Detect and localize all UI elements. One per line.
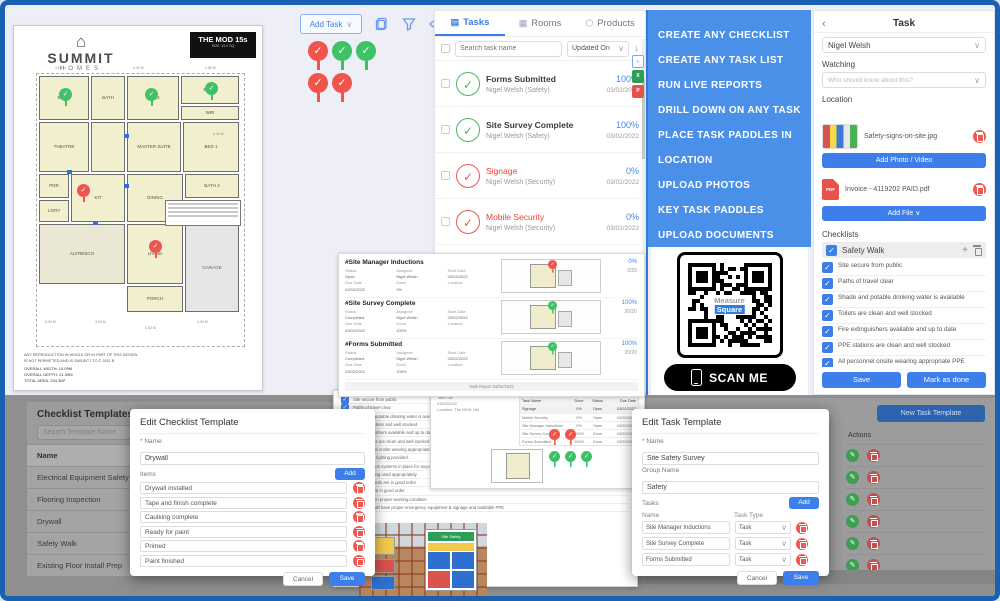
checklist-item[interactable]: Toilets are clean and well stocked	[822, 308, 986, 324]
phone-icon	[691, 369, 702, 386]
edit-button[interactable]: ✎	[846, 515, 859, 528]
floorplan-room: BED 1	[183, 122, 239, 172]
item-input[interactable]: Primed	[140, 540, 347, 552]
room-label: BATH 2	[204, 184, 219, 189]
cell-task-name: Site Manager Inductions	[520, 422, 570, 429]
task-paddle-pin[interactable]	[332, 73, 352, 93]
task-date: 03/02/2022	[606, 133, 639, 140]
checklist-item[interactable]: Site secure from public	[822, 260, 986, 276]
tab-label: Tasks	[463, 17, 489, 28]
select-all-checkbox[interactable]	[441, 44, 450, 53]
banner-line: CREATE ANY CHECKLIST	[658, 23, 811, 48]
task-template-row: Site Manager Inductions Task∨	[642, 521, 819, 534]
floorplan-room: GARAGE	[185, 224, 239, 312]
field-label: Location	[448, 280, 495, 285]
task-status-icon	[456, 210, 480, 234]
export-pdf-icon[interactable]: P	[632, 85, 644, 98]
checkbox-checked-icon[interactable]	[822, 278, 833, 289]
task-row[interactable]: Signage Nigel Welsh (Security) 0% 03/02/…	[435, 153, 645, 199]
trash-icon	[356, 513, 363, 521]
checkbox-checked-icon[interactable]	[822, 342, 833, 353]
banner-line: KEY TASK PADDLES	[658, 198, 811, 223]
trash-icon	[870, 474, 877, 482]
checkbox-checked-icon[interactable]	[822, 262, 833, 273]
brand-name: SUMMIT	[26, 50, 136, 66]
task-table-report-page: Task List03/02/2022Location: The MOD 15s…	[430, 390, 645, 489]
mark-as-done-button[interactable]: Mark as done	[907, 372, 986, 388]
edit-button[interactable]: ✎	[846, 493, 859, 506]
checkbox-checked-icon[interactable]	[826, 245, 837, 256]
report-section: #Forms Submitted Status Assignee Start D…	[345, 339, 638, 380]
floorplan-room	[91, 122, 125, 172]
field-label: Start Date	[448, 309, 495, 314]
field-value: 03/02/2022	[345, 287, 392, 292]
delete-row-button[interactable]	[796, 554, 808, 566]
template-row-label: Drywall	[37, 517, 62, 526]
trash-icon	[870, 562, 877, 570]
task-paddle-pin[interactable]	[308, 73, 328, 93]
tab[interactable]: ▤ Tasks	[435, 11, 505, 36]
report-item-text: Site secure from public	[353, 397, 397, 402]
table-row: Mobile Security 0% Open 03/02/2022	[520, 413, 638, 421]
task-checkbox[interactable]	[441, 125, 450, 134]
trash-icon	[976, 132, 983, 140]
delete-button[interactable]	[867, 471, 880, 484]
tab[interactable]: ▦ Rooms	[505, 11, 575, 36]
floorplan-room: MASTER SUITE	[127, 122, 181, 172]
checklist-header: Safety Walk +	[822, 242, 986, 258]
add-photo-button[interactable]: Add Photo / Video	[822, 153, 986, 168]
template-row-label: Existing Floor Install Prep	[37, 561, 122, 570]
totals-line: TOTAL AREA: 204.3M²	[24, 378, 73, 384]
delete-button[interactable]	[867, 515, 880, 528]
field-label: Status	[345, 350, 392, 355]
export-excel-icon[interactable]: X	[632, 70, 644, 83]
add-item-button[interactable]: Add	[335, 468, 365, 480]
floorplan-room: KIT	[71, 174, 125, 222]
delete-checklist-icon[interactable]	[973, 245, 982, 255]
name-label: Name	[144, 438, 161, 445]
task-template-name-input[interactable]	[642, 452, 819, 465]
task-paddle-pin[interactable]	[332, 41, 352, 61]
task-name-input[interactable]: Site Manager Inductions	[642, 521, 730, 534]
plan-disclaimer: ANY REPRODUCTION IN WHOLE OR IN PART OF …	[24, 353, 137, 364]
delete-button[interactable]	[867, 537, 880, 550]
new-task-template-button[interactable]: New Task Template	[877, 405, 985, 422]
cell-done: 0%	[570, 414, 587, 421]
report-map-thumbnail	[501, 341, 601, 375]
banner-line: LOCATION	[658, 148, 811, 173]
plan-subtitle: SIZE: 15.0 SQ	[190, 44, 256, 48]
checklist-item-row: Ready for paint	[140, 526, 365, 538]
col-task-type-label: Task Type	[734, 512, 794, 519]
disclaimer-line: IS NOT PERMITTED AND IS SUBJECT TO © 201…	[24, 359, 137, 364]
edit-button[interactable]: ✎	[846, 471, 859, 484]
banner-line: DRILL DOWN ON ANY TASK	[658, 98, 811, 123]
delete-button[interactable]	[867, 493, 880, 506]
floorplan-room: BATH 2	[185, 174, 239, 198]
add-task-label: Add Task	[310, 20, 343, 29]
chevron-down-icon: ∨	[781, 555, 787, 564]
task-checkbox[interactable]	[441, 217, 450, 226]
floorplan-room: ALFRESCO	[39, 224, 125, 284]
assignee-value: Nigel Welsh	[828, 41, 871, 50]
item-input[interactable]: Caulking complete	[140, 511, 347, 523]
room-label: THEATRE	[54, 145, 75, 150]
report-section: #Site Survey Complete Status Assignee St…	[345, 298, 638, 339]
task-type-select[interactable]: Task∨	[735, 521, 791, 534]
modal-title: Edit Task Template	[642, 417, 819, 434]
floorplan-document: ⌂ SUMMIT HOMES THE MOD 15s SIZE: 15.0 SQ…	[13, 25, 263, 391]
room-label: WIR	[206, 111, 215, 116]
safety-signs-photo: Site Safety	[359, 523, 487, 601]
field-value: 03/02/2022	[448, 274, 495, 279]
banner-line: RUN LIVE REPORTS	[658, 73, 811, 98]
group-name-input[interactable]	[642, 481, 819, 494]
report-paddle-pin	[549, 429, 560, 440]
task-assignee: Nigel Welsh (Safety)	[486, 87, 600, 94]
plan-title-box: THE MOD 15s SIZE: 15.0 SQ	[190, 32, 256, 58]
item-input[interactable]: Tape and finish complete	[140, 497, 347, 509]
checklist-item-text: Paths of travel clear	[838, 278, 894, 286]
task-checkbox[interactable]	[441, 171, 450, 180]
report-item-text: All onsite staff have proper emergency e…	[353, 505, 504, 510]
task-type-select[interactable]: Task∨	[735, 537, 791, 550]
field-value: Nigel Welsh	[396, 274, 443, 279]
delete-item-button[interactable]	[353, 526, 365, 538]
task-search-input[interactable]	[455, 41, 562, 57]
plan-title: THE MOD 15s	[190, 35, 256, 44]
floorplan-room: THEATRE	[39, 122, 89, 172]
field-value: 03/02/2022	[448, 356, 495, 361]
delete-item-button[interactable]	[353, 540, 365, 552]
room-label: KIT	[94, 196, 101, 201]
task-date: 03/02/2022	[606, 179, 639, 186]
task-checkbox[interactable]	[441, 79, 450, 88]
template-row-label: Flooring Inspection	[37, 495, 100, 504]
checklist-items: Site secure from public Paths of travel …	[822, 260, 986, 367]
task-paddle-pin[interactable]	[356, 41, 376, 61]
location-label: Location	[822, 95, 986, 104]
task-name-input[interactable]: Site Survey Complete	[642, 537, 730, 550]
trash-icon	[799, 556, 806, 564]
checklists-label: Checklists	[822, 230, 986, 239]
floorplan-room: BATH	[91, 76, 125, 120]
trash-icon	[799, 540, 806, 548]
field-label: Status	[345, 268, 392, 273]
checklist-name: Safety Walk	[842, 246, 957, 255]
checklist-item-text: PPE stations are clean and well stocked	[838, 342, 950, 350]
task-template-row: Forms Submitted Task∨	[642, 553, 819, 566]
field-label: Done	[396, 280, 443, 285]
cell-status: Open	[588, 422, 608, 429]
trash-icon	[976, 185, 983, 193]
banner-line: UPLOAD DOCUMENTS	[658, 223, 811, 248]
cell-task-name: Mobile Security	[520, 414, 570, 421]
task-title: Mobile Security	[486, 212, 600, 222]
room-label: MASTER SUITE	[137, 145, 170, 150]
group-name-label: Group Name	[642, 467, 819, 474]
tab-label: Products	[597, 18, 635, 29]
checklist-item-row: Tape and finish complete	[140, 497, 365, 509]
checklist-item-text: Fire extinguishers available and up to d…	[838, 326, 956, 334]
save-button[interactable]: Save	[783, 571, 819, 585]
room-label: BED 3	[57, 96, 70, 101]
checklist-item-row: Primed	[140, 540, 365, 552]
trash-icon	[356, 484, 363, 492]
save-button[interactable]: Save	[329, 572, 365, 586]
report-checklist-item: All onsite staff have proper emergency e…	[341, 504, 630, 512]
pdf-icon: PDF	[822, 179, 839, 200]
delete-item-button[interactable]	[353, 497, 365, 509]
trash-icon	[799, 524, 806, 532]
trash-icon	[870, 540, 877, 548]
add-task-button[interactable]: Add Task∨	[300, 14, 362, 34]
field-label: Start Date	[448, 350, 495, 355]
edit-task-template-modal: Edit Task Template * Name Group Name Tas…	[632, 409, 829, 576]
room-label: GARAGE	[202, 266, 221, 271]
site-safety-sign: Site Safety	[425, 529, 477, 591]
required-asterisk: *	[642, 438, 645, 445]
modal-title: Edit Checklist Template	[140, 417, 365, 434]
room-label: PORCH	[147, 297, 163, 302]
report-count: 20/20	[607, 350, 637, 356]
task-type-select[interactable]: Task∨	[735, 553, 791, 566]
delete-item-button[interactable]	[353, 482, 365, 494]
room-label: BED 2	[146, 96, 159, 101]
task-report-page: #Site Manager Inductions Status Assignee…	[338, 253, 645, 397]
field-label: Assignee	[396, 268, 443, 273]
item-input[interactable]: Ready for paint	[140, 526, 347, 538]
report-paddle-pin	[565, 429, 576, 440]
field-value: Completed	[345, 315, 392, 320]
report-map-pin	[548, 260, 557, 269]
delete-item-button[interactable]	[353, 555, 365, 567]
checklist-name-input[interactable]	[140, 452, 365, 465]
field-label: Due Date	[345, 362, 392, 367]
task-percent: 100%	[606, 120, 639, 130]
floorplan-room: LIVING	[127, 224, 183, 284]
room-label: ALFRESCO	[70, 252, 94, 257]
photo-thumbnail[interactable]	[822, 124, 858, 149]
report-count: 0/20	[607, 268, 637, 274]
checklist-item-row: Caulking complete	[140, 511, 365, 523]
report-map-thumbnail	[501, 300, 601, 334]
checkbox-checked-icon[interactable]	[822, 294, 833, 305]
checklist-item[interactable]: All personnel onsite wearing appropriate…	[822, 356, 986, 367]
logo-word-2: Square	[714, 305, 744, 314]
checklist-item[interactable]: PPE stations are clean and well stocked	[822, 340, 986, 356]
edit-button[interactable]: ✎	[846, 449, 859, 462]
task-paddle-pin[interactable]	[308, 41, 328, 61]
filter-icon[interactable]	[402, 17, 416, 31]
checklist-item[interactable]: Shade and potable drinking water is avai…	[822, 292, 986, 308]
actions-column-header: Actions	[848, 432, 871, 439]
task-row[interactable]: Site Survey Complete Nigel Welsh (Safety…	[435, 107, 645, 153]
cell-status: Open	[588, 405, 608, 413]
report-count: 20/20	[607, 309, 637, 315]
cell-done: 0%	[570, 422, 587, 429]
edit-button[interactable]: ✎	[846, 537, 859, 550]
tab-icon: ▤	[451, 17, 460, 28]
chevron-down-icon: ∨	[346, 20, 352, 29]
room-label: BED 1	[204, 145, 217, 150]
report-percent: 100%	[607, 341, 637, 347]
floorplan-room: WIR	[181, 106, 239, 120]
export-icons: ≡ X P	[632, 55, 644, 98]
task-title: Forms Submitted	[486, 74, 600, 84]
task-row[interactable]: Mobile Security Nigel Welsh (Security) 0…	[435, 199, 645, 245]
delete-button[interactable]	[867, 449, 880, 462]
qr-code: Measure Square	[677, 252, 783, 358]
room-label: ENS 1	[203, 88, 216, 93]
trash-icon	[356, 542, 363, 550]
task-status-icon	[456, 164, 480, 188]
field-label: Due Date	[345, 280, 392, 285]
report-footer: Task Report 03/02/2022	[345, 382, 638, 391]
delete-photo-button[interactable]	[973, 130, 986, 143]
tasks-label: Tasks	[642, 500, 659, 507]
tab[interactable]: ⬡ Products	[575, 11, 645, 36]
task-assignee: Nigel Welsh (Safety)	[486, 133, 600, 140]
copy-icon[interactable]	[375, 17, 389, 31]
field-label: Location	[448, 362, 495, 367]
watching-placeholder: Who should know about this?	[828, 77, 913, 84]
task-status-icon	[456, 72, 480, 96]
add-file-button[interactable]: Add File ∨	[822, 206, 986, 221]
field-label: Done	[396, 321, 443, 326]
dimension-label: 1.85 M	[205, 66, 216, 70]
sign-header: Site Safety	[428, 532, 474, 541]
task-filter-row: Updated On∨ ↓	[435, 37, 645, 61]
checklist-item-text: Toilets are clean and well stocked	[838, 310, 932, 318]
task-type-value: Task	[739, 541, 751, 547]
report-checklist-item: Scaffolding in proper working condition	[341, 496, 630, 504]
room-label: LIVING	[148, 252, 163, 257]
delete-row-button[interactable]	[796, 522, 808, 534]
delete-item-button[interactable]	[353, 511, 365, 523]
plan-notes-box	[165, 200, 241, 226]
field-label: Status	[345, 309, 392, 314]
qr-block: Measure Square SCAN ME	[651, 247, 808, 395]
add-task-row-button[interactable]: Add	[789, 497, 819, 509]
report-section-title: #Site Manager Inductions	[345, 259, 495, 266]
cancel-button[interactable]: Cancel	[737, 571, 777, 585]
report-section: #Site Manager Inductions Status Assignee…	[345, 257, 638, 298]
file-name: Invoice - 4119202 PAID.pdf	[845, 186, 967, 193]
trash-icon	[356, 557, 363, 565]
task-panel-tabs: ▤ Tasks ▦ Rooms ⬡ Products	[435, 11, 645, 37]
task-status-icon	[456, 118, 480, 142]
field-label: Assignee	[396, 309, 443, 314]
download-icon[interactable]: ↓	[634, 43, 639, 54]
checkbox-checked-icon[interactable]	[822, 310, 833, 321]
mandatory-sign	[371, 576, 395, 590]
report-map-thumbnail	[501, 259, 601, 293]
trash-icon	[870, 518, 877, 526]
checklist-item-text: All personnel onsite wearing appropriate…	[838, 358, 965, 366]
watching-select[interactable]: Who should know about this?∨	[822, 72, 986, 88]
floorplan-room: PORCH	[127, 286, 183, 312]
template-row-label: Safety Walk	[37, 539, 77, 548]
col-name-label: Name	[642, 512, 734, 519]
template-actions-row: ✎	[846, 488, 986, 510]
task-type-value: Task	[739, 557, 751, 563]
measure-square-logo: Measure Square	[712, 295, 746, 315]
delete-file-button[interactable]	[973, 183, 986, 196]
col-task-name: Task Name	[520, 397, 570, 405]
checkbox-checked-icon[interactable]	[822, 358, 833, 367]
checklist-item[interactable]: Paths of travel clear	[822, 276, 986, 292]
trash-icon	[356, 499, 363, 507]
name-label: Name	[646, 438, 663, 445]
assignee-select[interactable]: Nigel Welsh∨	[822, 37, 986, 53]
cancel-button[interactable]: Cancel	[283, 572, 323, 586]
field-value: Nigel Welsh	[396, 315, 443, 320]
add-item-icon[interactable]: +	[962, 245, 968, 256]
task-date: 03/02/2022	[606, 225, 639, 232]
task-percent: 0%	[606, 212, 639, 222]
disclaimer-line: ANY REPRODUCTION IN WHOLE OR IN PART OF …	[24, 353, 137, 358]
sort-value: Updated On	[572, 45, 610, 52]
task-name-input[interactable]: Forms Submitted	[642, 553, 730, 566]
item-input[interactable]: Drywall installed	[140, 482, 347, 494]
panel-edge-accent	[646, 10, 648, 395]
template-actions-row: ✎	[846, 466, 986, 488]
scan-me-pill: SCAN ME	[664, 364, 796, 391]
chevron-down-icon: ∨	[781, 523, 787, 532]
photos-label: Photos	[341, 515, 630, 521]
qr-finder	[688, 319, 716, 347]
required-asterisk: *	[140, 438, 143, 445]
room-label: BATH	[102, 96, 114, 101]
col-due-date: Due Date	[608, 397, 639, 405]
export-report-icon[interactable]: ≡	[632, 55, 644, 68]
floorplan-room: BED 3	[39, 76, 89, 120]
task-template-row: Site Survey Complete Task∨	[642, 537, 819, 550]
floorplan-room: BED 2	[127, 76, 179, 120]
task-row[interactable]: Forms Submitted Nigel Welsh (Safety) 100…	[435, 61, 645, 107]
photo-filename: Safety-signs-on-site.jpg	[864, 133, 967, 140]
report-section-title: #Site Survey Complete	[345, 300, 495, 307]
col-done: Done	[570, 397, 587, 405]
item-input[interactable]: Paint finished	[140, 555, 347, 567]
field-label: Done	[396, 362, 443, 367]
app-window: ⌂ SUMMIT HOMES THE MOD 15s SIZE: 15.0 SQ…	[0, 0, 1000, 601]
brand-subname: HOMES	[26, 66, 136, 72]
cell-done: 0%	[570, 405, 587, 413]
delete-row-button[interactable]	[796, 538, 808, 550]
sort-select[interactable]: Updated On∨	[567, 41, 629, 57]
task-title: Site Survey Complete	[486, 120, 600, 130]
field-label: Location	[448, 321, 495, 326]
field-label: Start Date	[448, 268, 495, 273]
banner-line: PLACE TASK PADDLES IN	[658, 123, 811, 148]
report-percent: 0%	[607, 259, 637, 265]
qr-finder	[688, 263, 716, 291]
checkbox-checked-icon[interactable]	[822, 326, 833, 337]
checklist-item-text: Site secure from public	[838, 262, 902, 270]
feature-banner: CREATE ANY CHECKLISTCREATE ANY TASK LIST…	[648, 10, 811, 247]
save-button[interactable]: Save	[822, 372, 901, 388]
warning-sign	[373, 537, 395, 555]
checklist-item[interactable]: Fire extinguishers available and up to d…	[822, 324, 986, 340]
report-map-pin	[548, 342, 557, 351]
field-value: Completed	[345, 356, 392, 361]
table-row: Site Manager Inductions 0% Open 03/02/20…	[520, 421, 638, 429]
cell-status: Open	[588, 414, 608, 421]
template-row-label: Name	[37, 451, 57, 460]
